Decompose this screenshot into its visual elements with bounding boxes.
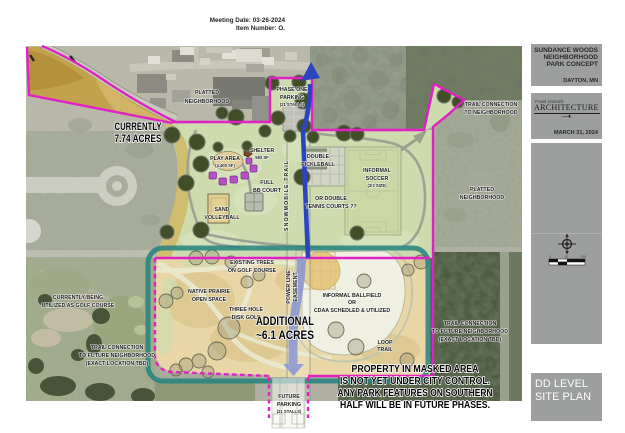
svg-text:TRAIL: TRAIL xyxy=(377,347,393,353)
svg-text:(2/3 SIZE): (2/3 SIZE) xyxy=(367,183,387,188)
svg-text:(EXACT LOCATION TBD): (EXACT LOCATION TBD) xyxy=(439,337,502,343)
svg-text:DOUBLE: DOUBLE xyxy=(307,154,330,160)
svg-text:INFORMAL BALLFIELD: INFORMAL BALLFIELD xyxy=(323,293,382,299)
svg-text:PARKING: PARKING xyxy=(277,402,301,408)
svg-text:SOCCER: SOCCER xyxy=(366,176,389,182)
svg-text:TENNIS COURTS ??: TENNIS COURTS ?? xyxy=(305,204,356,210)
svg-text:NATIVE PRAIRIE: NATIVE PRAIRIE xyxy=(188,289,230,295)
svg-text:FULL: FULL xyxy=(260,180,274,186)
svg-text:TRAIL CONNECTION: TRAIL CONNECTION xyxy=(444,321,497,327)
svg-text:(4,400 SF): (4,400 SF) xyxy=(215,163,235,168)
svg-text:TO FUTURE NEIGHBORHOOD: TO FUTURE NEIGHBORHOOD xyxy=(79,353,155,359)
svg-text:PLAY AREA: PLAY AREA xyxy=(210,156,240,162)
svg-text:ANY PARK FEATURES ON SOUTHERN: ANY PARK FEATURES ON SOUTHERN xyxy=(338,387,493,399)
svg-text:SNOWMOBILE TRAIL: SNOWMOBILE TRAIL xyxy=(284,160,290,231)
svg-text:PHASE ONE: PHASE ONE xyxy=(276,87,308,93)
svg-text:NEIGHBORHOOD: NEIGHBORHOOD xyxy=(460,195,505,201)
svg-text:INFORMAL: INFORMAL xyxy=(363,168,392,174)
svg-text:100: 100 xyxy=(581,255,586,259)
svg-text:CDAA SCHEDLED & UTILIZED: CDAA SCHEDLED & UTILIZED xyxy=(314,308,390,314)
svg-text:583 SF: 583 SF xyxy=(255,155,269,160)
svg-text:PROPERTY IN MASKED AREA: PROPERTY IN MASKED AREA xyxy=(352,363,479,375)
svg-text:PARKING: PARKING xyxy=(280,95,304,101)
svg-text:POWER LINE: POWER LINE xyxy=(286,270,292,304)
svg-text:~6.1 ACRES: ~6.1 ACRES xyxy=(256,328,314,342)
svg-text:50: 50 xyxy=(565,255,569,259)
svg-text:ON GOLF COURSE: ON GOLF COURSE xyxy=(228,268,277,274)
svg-text:0: 0 xyxy=(549,255,551,259)
svg-text:SAND: SAND xyxy=(214,207,229,213)
svg-text:THREE HOLE: THREE HOLE xyxy=(229,307,264,313)
svg-text:OPEN SPACE: OPEN SPACE xyxy=(192,297,227,303)
svg-text:PICKLEBALL: PICKLEBALL xyxy=(301,162,335,168)
svg-text:VOLLEYBALL: VOLLEYBALL xyxy=(204,215,240,221)
svg-text:BB COURT: BB COURT xyxy=(253,188,282,194)
svg-text:TRAIL CONNECTION: TRAIL CONNECTION xyxy=(91,345,144,351)
svg-text:7.74 ACRES: 7.74 ACRES xyxy=(115,133,162,145)
svg-text:TRAIL CONNECTION: TRAIL CONNECTION xyxy=(465,102,518,108)
svg-text:CURRENTLY BEING: CURRENTLY BEING xyxy=(53,295,103,301)
svg-text:(EXACT LOCATION TBD): (EXACT LOCATION TBD) xyxy=(86,361,149,367)
svg-text:PLATTED: PLATTED xyxy=(470,187,494,193)
svg-text:IS NOT YET UNDER CITY CONTROL.: IS NOT YET UNDER CITY CONTROL. xyxy=(340,375,490,387)
svg-text:(21 STALLS): (21 STALLS) xyxy=(280,102,305,107)
svg-text:OR DOUBLE: OR DOUBLE xyxy=(315,196,347,202)
svg-text:NEIGHBORHOOD: NEIGHBORHOOD xyxy=(185,99,230,105)
svg-text:PLATTED: PLATTED xyxy=(195,90,219,96)
svg-text:CURRENTLY: CURRENTLY xyxy=(115,121,162,133)
svg-text:OR: OR xyxy=(348,300,356,306)
svg-text:FUTURE: FUTURE xyxy=(278,394,300,400)
svg-text:UTILIZED AS GOLF COURSE: UTILIZED AS GOLF COURSE xyxy=(42,303,115,309)
svg-text:TO FUTURE NEIGHBORHOOD: TO FUTURE NEIGHBORHOOD xyxy=(432,329,508,335)
svg-text:EXISTING TREES: EXISTING TREES xyxy=(230,260,274,266)
svg-text:SHELTER: SHELTER xyxy=(250,148,275,154)
svg-text:(21 STALLS): (21 STALLS) xyxy=(277,409,302,414)
svg-text:EASEMENT: EASEMENT xyxy=(293,272,299,302)
svg-text:TO NEIGHBORHOOD: TO NEIGHBORHOOD xyxy=(464,110,517,116)
svg-text:LOOP: LOOP xyxy=(377,340,392,346)
svg-text:HALF WILL BE IN FUTURE PHASES.: HALF WILL BE IN FUTURE PHASES. xyxy=(340,399,490,411)
svg-text:ADDITIONAL: ADDITIONAL xyxy=(256,314,314,328)
